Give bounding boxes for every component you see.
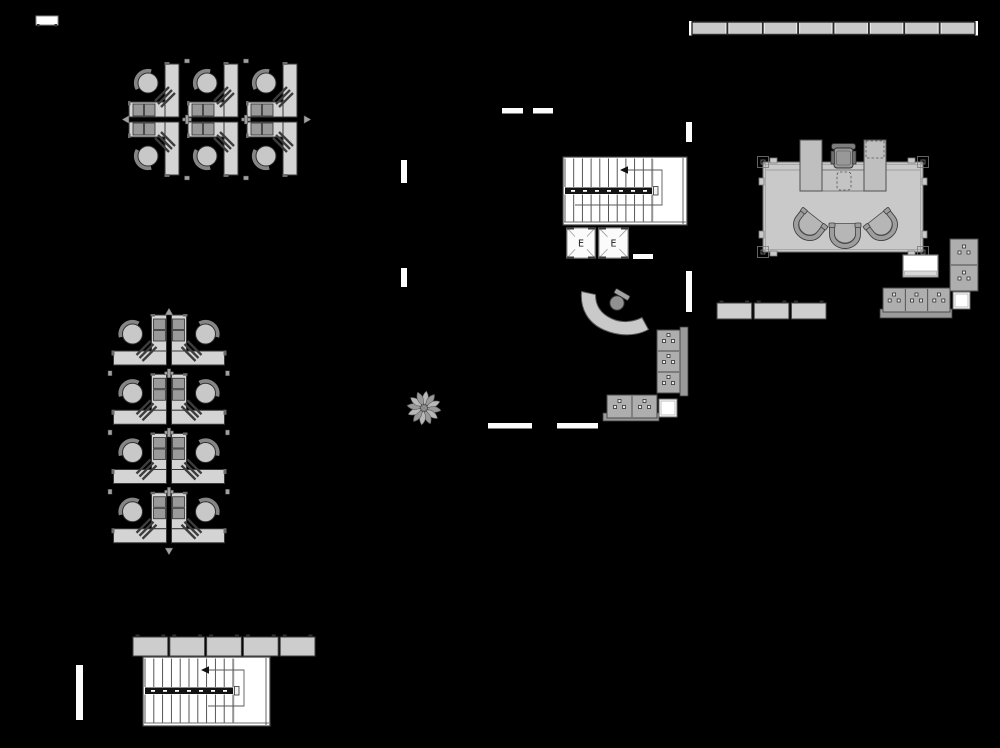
cabinet-nub: [720, 301, 724, 304]
task-chair: [256, 146, 276, 166]
cabinet-nub: [309, 635, 313, 638]
wall-segment: [401, 268, 407, 287]
panel-nub: [128, 101, 131, 106]
shaft-wall-tick: [588, 257, 595, 260]
pedestal-drawer: [204, 104, 215, 116]
shaft-wall-tick: [621, 227, 628, 230]
handrail-dash: [199, 690, 203, 692]
elevator-label: E: [578, 239, 584, 250]
wall-segment: [557, 423, 598, 429]
task-chair: [196, 324, 216, 344]
panel-tab: [185, 176, 190, 180]
credenza-row-segment: [754, 303, 789, 319]
pedestal-drawer: [154, 331, 166, 342]
white-table-edge: [905, 271, 937, 276]
floor-plan-viewport: EE: [0, 0, 1000, 748]
reception-cabinet-horizontal: [607, 395, 657, 418]
workstation: [187, 62, 238, 117]
shaft-wall-tick: [567, 227, 574, 230]
panel-nub: [165, 174, 170, 177]
panel-tab: [185, 59, 190, 63]
elevator-shaft: E: [567, 227, 595, 259]
panel-nub: [224, 351, 227, 356]
drawer-handle: [639, 406, 642, 409]
cabinet-nub: [209, 635, 213, 638]
panel-nub: [112, 410, 115, 415]
credenza-row-segment: [717, 303, 752, 319]
panel-end-cap: [122, 116, 129, 124]
panel-tab: [226, 430, 230, 435]
task-chair: [256, 73, 276, 93]
cabinet-nub: [794, 301, 798, 304]
wall-segment: [488, 423, 532, 429]
workstation: [246, 62, 297, 117]
cabinet-nub: [198, 635, 202, 638]
panel-nub: [224, 62, 229, 65]
handrail-dash: [607, 190, 611, 192]
pedestal-drawer: [154, 378, 166, 389]
workstation-pod-mirror: [187, 122, 238, 177]
workstation: [112, 492, 167, 543]
task-chair: [196, 383, 216, 403]
wall-segment: [686, 271, 692, 312]
executive-office: [758, 140, 929, 258]
workstation: [112, 314, 167, 365]
pedestal-drawer: [154, 390, 166, 401]
drawer-handle: [667, 355, 670, 358]
credenza-row-segment: [791, 303, 826, 319]
drawer-handle: [614, 406, 617, 409]
panel-junction: [167, 487, 170, 496]
panel-nub: [151, 314, 156, 317]
panel-tab: [244, 176, 249, 180]
guest-chair-arm: [855, 223, 861, 228]
workstation: [246, 122, 297, 177]
panel-nub: [128, 134, 131, 139]
task-chair: [138, 146, 158, 166]
pedestal-drawer: [154, 497, 166, 508]
handrail-dash: [211, 690, 215, 692]
drawer-handle: [963, 245, 966, 248]
cabinet-nub: [745, 301, 749, 304]
handrail-dash: [643, 190, 647, 192]
drawer-handle: [915, 293, 918, 296]
drawer-handle: [967, 251, 970, 254]
cabinet-nub: [235, 635, 239, 638]
workstation: [172, 433, 227, 484]
workstation: [187, 122, 238, 177]
handrail-dash: [163, 690, 167, 692]
workstation: [112, 433, 167, 484]
reception-chair: [610, 296, 624, 310]
workstation: [172, 314, 227, 365]
reception-cabinet-vertical: [657, 330, 680, 393]
drawer-handle: [672, 382, 675, 385]
panel-nub: [283, 174, 288, 177]
wall-tab: [770, 251, 777, 256]
drawer-handle: [937, 293, 940, 296]
small-table: [36, 16, 58, 27]
handrail-dash: [175, 690, 179, 692]
executive-chair-arm: [831, 151, 835, 164]
cabinet-nub: [272, 635, 276, 638]
cabinet-nub: [757, 301, 761, 304]
potted-plant: [407, 391, 441, 425]
panel-tab: [108, 489, 112, 494]
drawer-handle: [911, 299, 914, 302]
reception-side-square-top: [659, 399, 677, 417]
drawer-handle: [618, 400, 621, 403]
panel-tab: [108, 430, 112, 435]
panel-nub: [246, 101, 249, 106]
guest-chair: [829, 223, 861, 249]
drawer-handle: [942, 299, 945, 302]
pedestal-drawer: [192, 104, 203, 116]
locker-row-segment: [243, 637, 278, 656]
pedestal-drawer: [173, 508, 185, 519]
shaft-wall-tick: [567, 257, 574, 260]
workstation-pod-mirror: [112, 314, 167, 365]
drawer-handle: [897, 299, 900, 302]
panel-nub: [224, 528, 227, 533]
pedestal-drawer: [145, 123, 156, 135]
panel-end-cap: [165, 548, 173, 555]
drawer-handle: [663, 340, 666, 343]
task-chair: [138, 73, 158, 93]
handrail-dash: [595, 190, 599, 192]
panel-nub: [183, 373, 188, 376]
task-chair: [196, 502, 216, 522]
pedestal-drawer: [204, 123, 215, 135]
cabinet-nub: [136, 635, 140, 638]
side-table-square: [953, 292, 970, 309]
pedestal-drawer: [173, 390, 185, 401]
panel-nub: [283, 62, 288, 65]
panel-junction: [167, 428, 170, 437]
cubicle-cluster-left: [108, 308, 230, 555]
cabinet-body: [883, 288, 950, 312]
file-cabinet-tall: [950, 239, 978, 291]
workstation: [128, 62, 179, 117]
pedestal-drawer: [173, 449, 185, 460]
pedestal-drawer: [173, 378, 185, 389]
panel-junction: [244, 115, 247, 124]
task-chair: [123, 443, 143, 463]
panel-junction: [185, 115, 188, 124]
wall-tab: [759, 231, 764, 238]
pedestal-drawer: [133, 123, 144, 135]
plant-center: [421, 405, 428, 412]
pedestal-drawer: [173, 331, 185, 342]
handrail-dash: [223, 690, 227, 692]
panel-nub: [112, 469, 115, 474]
cubicle-cluster-top: [122, 59, 311, 180]
drawer-handle: [888, 299, 891, 302]
drawer-handle: [672, 340, 675, 343]
drawer-handle: [667, 334, 670, 337]
workstation-pod: [112, 433, 227, 484]
shaft-wall-tick: [588, 227, 595, 230]
panel-nub: [151, 433, 156, 436]
workstation-pod: [112, 314, 227, 365]
file-cabinet-wide: [883, 288, 950, 312]
wall-segment: [502, 108, 523, 114]
pedestal-drawer: [154, 449, 166, 460]
panel-end-cap: [165, 308, 173, 315]
guest-chair-arm: [829, 223, 835, 228]
drawer-handle: [958, 251, 961, 254]
wall-tab: [922, 231, 927, 238]
workstation-pod: [246, 62, 297, 177]
handrail-newel: [654, 187, 659, 196]
pedestal-drawer: [133, 104, 144, 116]
table-leg: [55, 24, 58, 27]
panel-tab: [226, 371, 230, 376]
cabinet-base: [680, 327, 688, 396]
panel-tab: [226, 489, 230, 494]
window-strip: [689, 21, 978, 36]
handrail-dash: [619, 190, 623, 192]
cabinet-nub: [283, 635, 287, 638]
panel-end-cap: [304, 116, 311, 124]
panel-nub: [246, 134, 249, 139]
panel-nub: [151, 492, 156, 495]
pedestal-drawer: [154, 508, 166, 519]
shaft-wall-tick: [599, 227, 606, 230]
pedestal-drawer: [173, 438, 185, 449]
shaft-wall-tick: [621, 257, 628, 260]
workstation: [128, 122, 179, 177]
credenza-row: [717, 301, 826, 320]
panel-nub: [224, 410, 227, 415]
cabinet-nub: [246, 635, 250, 638]
drawer-handle: [967, 277, 970, 280]
panel-tab: [244, 59, 249, 63]
cabinet-body: [657, 330, 680, 393]
wall-tab: [759, 178, 764, 185]
task-chair: [197, 73, 217, 93]
pedestal-drawer: [263, 104, 274, 116]
pedestal-drawer: [154, 319, 166, 330]
wall-tab: [922, 178, 927, 185]
task-chair: [196, 443, 216, 463]
executive-chair-arm: [853, 151, 857, 164]
drawer-handle: [958, 277, 961, 280]
panel-nub: [151, 373, 156, 376]
panel-nub: [183, 492, 188, 495]
workstation-pod-mirror: [112, 492, 167, 543]
shaft-wall-tick: [599, 257, 606, 260]
locker-row: [133, 635, 315, 657]
drawer-handle: [623, 406, 626, 409]
handrail-dash: [571, 190, 575, 192]
pedestal-drawer: [173, 497, 185, 508]
wall-tab: [770, 158, 777, 163]
drawer-handle: [667, 376, 670, 379]
desk-return-right: [864, 140, 886, 191]
task-chair: [123, 383, 143, 403]
cabinet-nub: [820, 301, 824, 304]
workstation: [172, 373, 227, 424]
task-chair: [123, 502, 143, 522]
locker-row-segment: [280, 637, 315, 656]
pedestal-drawer: [145, 104, 156, 116]
panel-tab: [108, 371, 112, 376]
floor-plan-drawing: EE: [0, 0, 1000, 748]
workstation-pod: [187, 62, 238, 177]
locker-row-segment: [170, 637, 205, 656]
wall-segment: [686, 122, 692, 142]
side-table-square-top: [953, 292, 970, 309]
pedestal-drawer: [251, 123, 262, 135]
workstation-pod: [128, 62, 179, 177]
pedestal-drawer: [192, 123, 203, 135]
pedestal-drawer: [263, 123, 274, 135]
workstation: [172, 492, 227, 543]
pedestal-drawer: [251, 104, 262, 116]
workstation-pod-mirror: [112, 373, 167, 424]
workstation-pod-mirror: [128, 122, 179, 177]
elevator-label: E: [610, 239, 616, 250]
wall-segment: [633, 254, 653, 259]
workstation: [112, 373, 167, 424]
cabinet-nub: [782, 301, 786, 304]
panel-nub: [224, 174, 229, 177]
drawer-handle: [663, 382, 666, 385]
panel-nub: [183, 314, 188, 317]
panel-nub: [187, 134, 190, 139]
handrail-dash: [151, 690, 155, 692]
panel-nub: [112, 528, 115, 533]
wall-tab: [908, 158, 915, 163]
stairwell-upper: [563, 157, 687, 225]
drawer-handle: [663, 361, 666, 364]
desk-return-left: [800, 140, 822, 191]
small-table-top: [36, 16, 58, 25]
table-leg: [37, 24, 40, 27]
desk-center: [822, 170, 864, 191]
drawer-handle: [933, 299, 936, 302]
drawer-handle: [963, 271, 966, 274]
handrail-dash: [583, 190, 587, 192]
drawer-handle: [893, 293, 896, 296]
reception-side-square: [659, 399, 677, 417]
elevator-shaft: E: [599, 227, 628, 259]
workstation-pod-mirror: [246, 122, 297, 177]
handrail-dash: [631, 190, 635, 192]
panel-nub: [112, 351, 115, 356]
workstation-pod: [112, 492, 227, 543]
stairwell-lower: [143, 657, 270, 726]
workstation-pod-mirror: [112, 433, 167, 484]
wall-segment: [76, 665, 83, 720]
cabinet-nub: [172, 635, 176, 638]
wall-segment: [533, 108, 553, 114]
task-chair: [123, 324, 143, 344]
drawer-handle: [920, 299, 923, 302]
cabinet-nub: [161, 635, 165, 638]
drawer-handle: [672, 361, 675, 364]
task-chair: [197, 146, 217, 166]
handrail-newel: [235, 687, 240, 696]
panel-nub: [183, 433, 188, 436]
panel-nub: [165, 62, 170, 65]
pedestal-drawer: [173, 319, 185, 330]
panel-nub: [224, 469, 227, 474]
drawer-handle: [648, 406, 651, 409]
pedestal-drawer: [154, 438, 166, 449]
locker-row-segment: [133, 637, 168, 656]
panel-nub: [187, 101, 190, 106]
workstation-pod: [112, 373, 227, 424]
wall-segment: [401, 160, 407, 183]
panel-junction: [167, 369, 170, 378]
handrail-dash: [187, 690, 191, 692]
drawer-handle: [643, 400, 646, 403]
locker-row-segment: [207, 637, 242, 656]
guest-chair-seat: [835, 224, 856, 244]
